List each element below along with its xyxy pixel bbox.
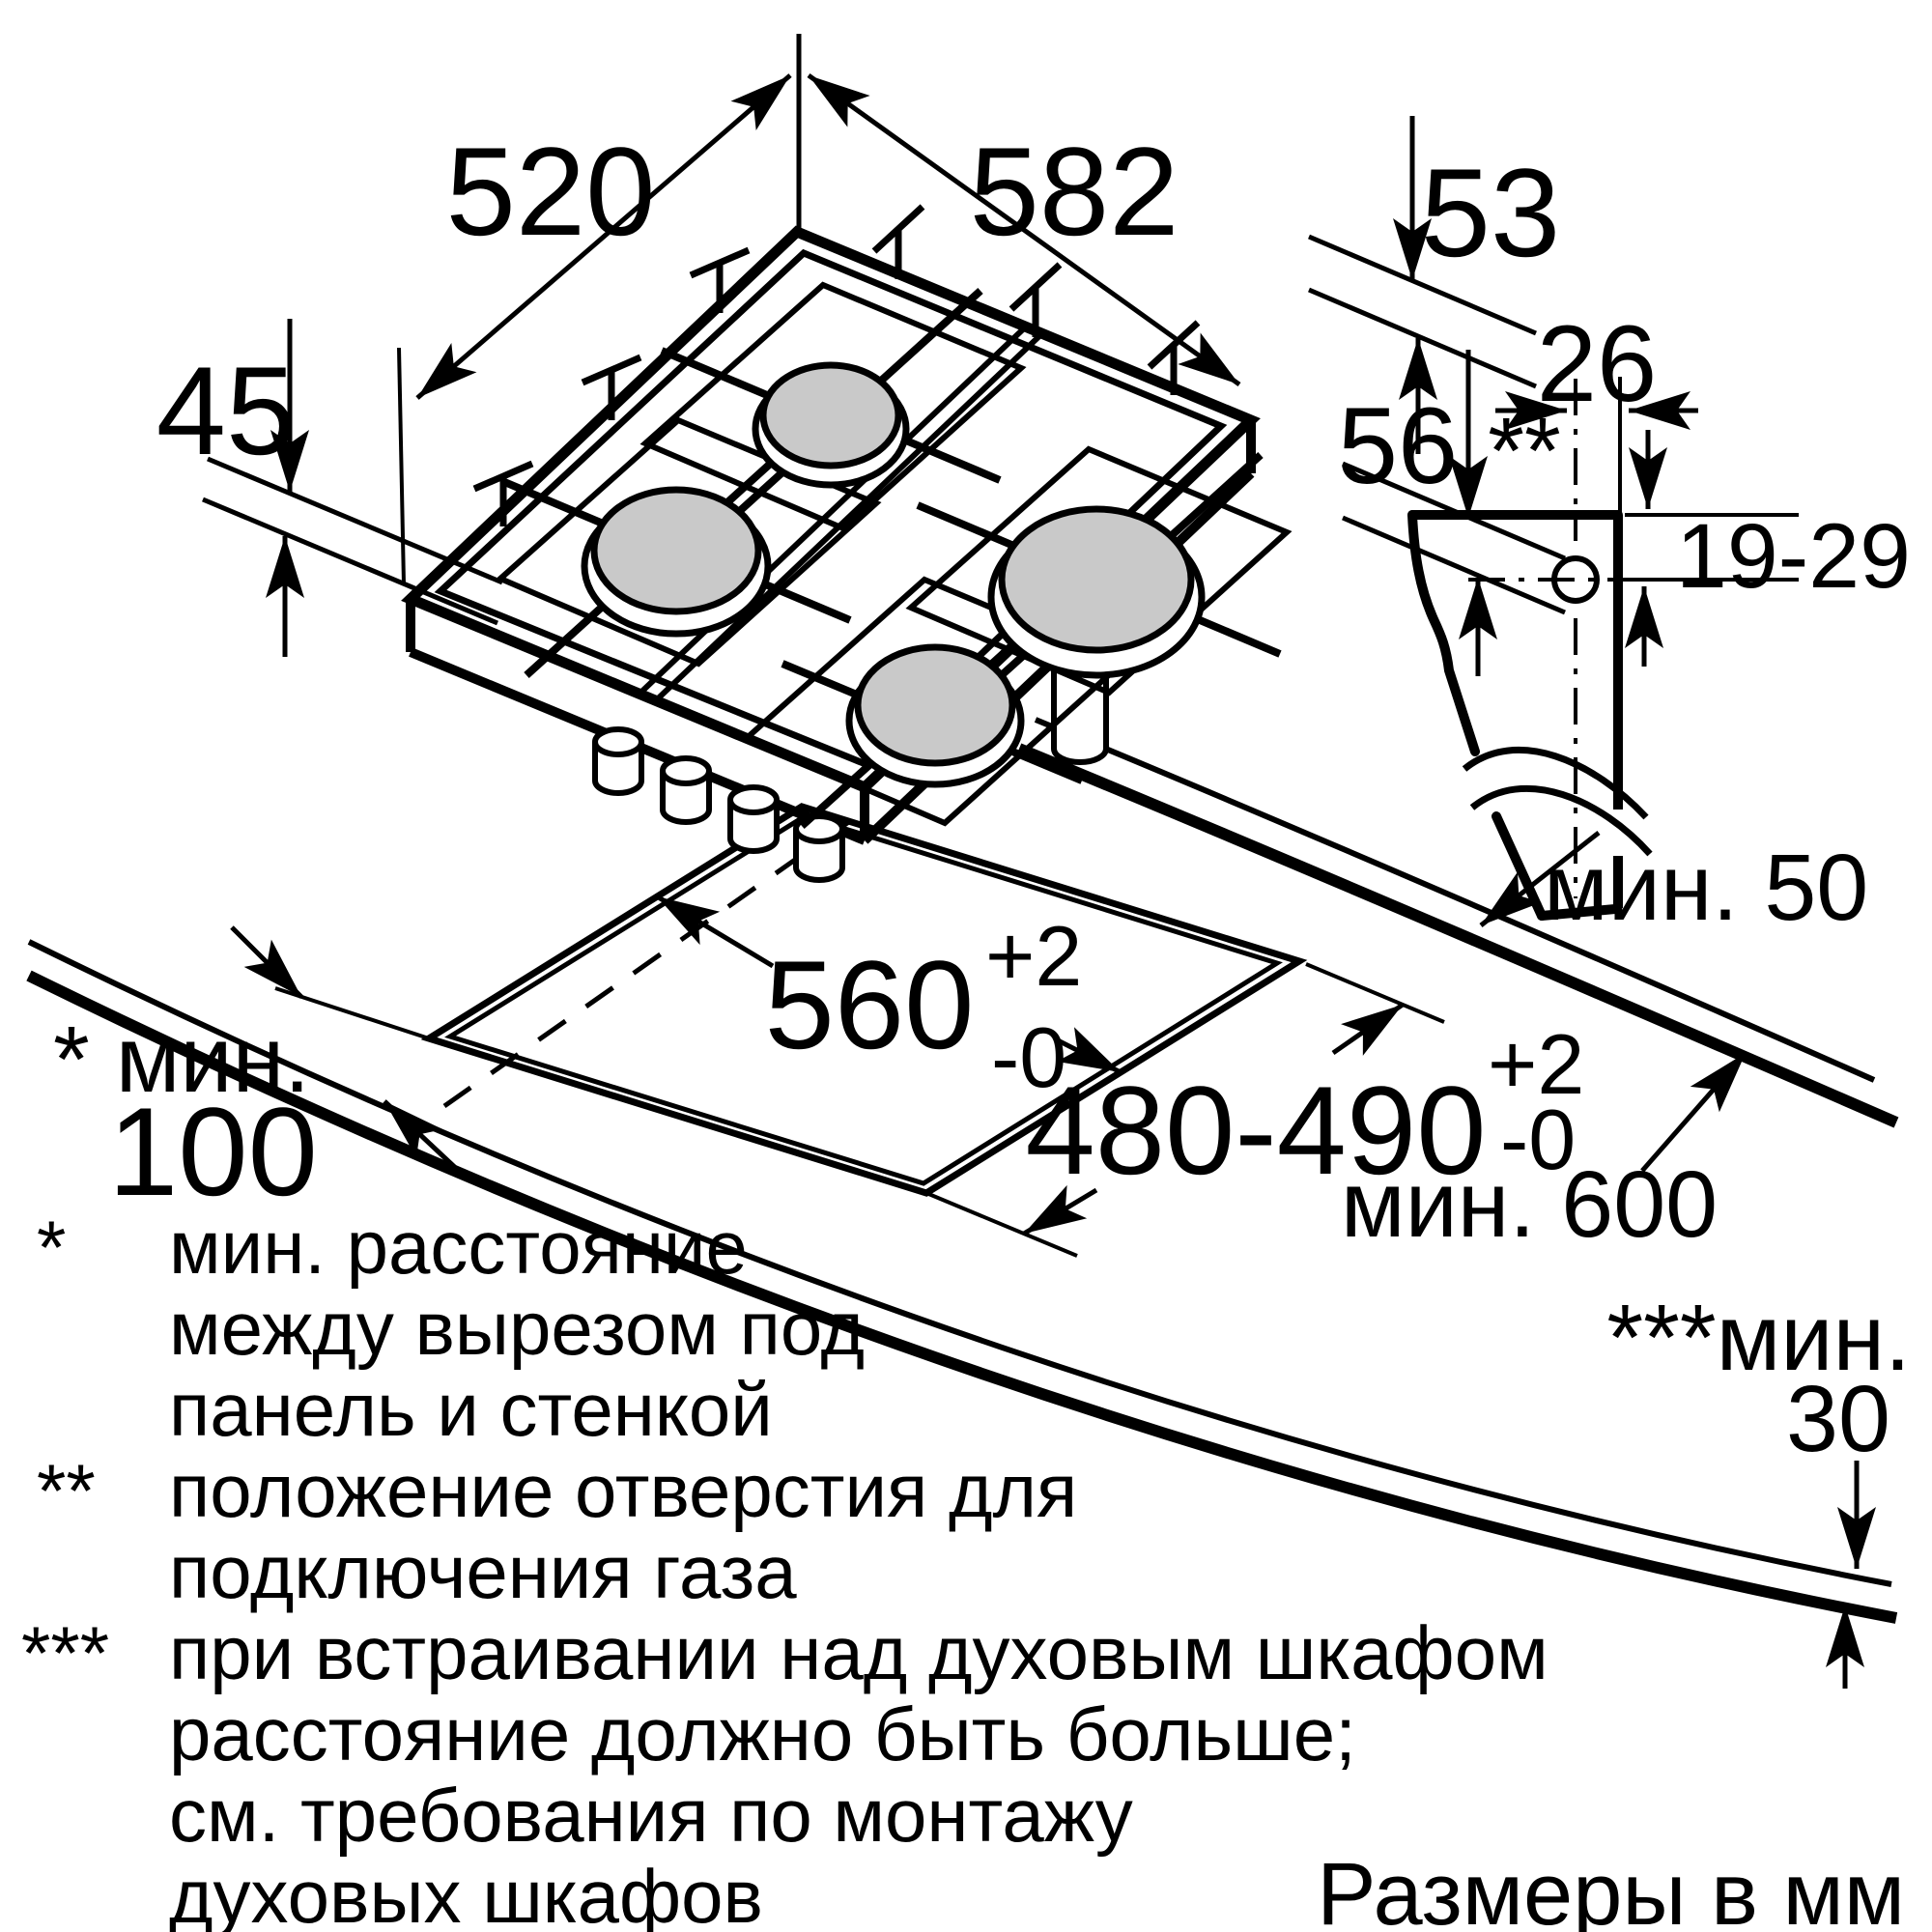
- dim-560: 560: [765, 934, 975, 1075]
- footnote-marker-3: ***: [21, 1610, 109, 1695]
- value-min100: 100: [108, 1081, 318, 1222]
- dim-520: 520: [446, 121, 656, 262]
- footnote-line: мин. расстояние: [169, 1205, 748, 1290]
- burner-front: [849, 647, 1021, 784]
- footnote-line: см. требования по монтажу: [169, 1773, 1133, 1858]
- burner-back: [755, 365, 906, 485]
- footnote-line: духовых шкафов: [169, 1854, 763, 1932]
- gas-hole-marker: **: [1488, 398, 1561, 503]
- footnote-line: панель и стенкой: [169, 1367, 773, 1452]
- dim-560-plus: +2: [985, 908, 1082, 1004]
- label-min600: мин. 600: [1341, 1151, 1718, 1257]
- footnote-line: расстояние должно быть больше;: [169, 1691, 1356, 1776]
- dim-45: 45: [156, 340, 297, 481]
- dim-19-29: 19-29: [1676, 505, 1911, 608]
- bracket-detail: 26 ** 19-29: [1412, 303, 1911, 916]
- burner-left: [584, 490, 768, 634]
- burner-right: [991, 509, 1202, 675]
- label-min50: мин. 50: [1544, 835, 1868, 940]
- dim-53: 53: [1421, 142, 1561, 283]
- footnote-marker-2: **: [37, 1448, 96, 1533]
- footnote-marker-1: *: [37, 1205, 66, 1290]
- units-note: Размеры в мм: [1317, 1845, 1905, 1932]
- value-min30: 30: [1786, 1366, 1890, 1471]
- hob-drawing: [411, 207, 1287, 880]
- dim-582: 582: [970, 121, 1179, 262]
- footnotes: * мин. расстояние между вырезом под пане…: [21, 1205, 1548, 1932]
- installation-diagram: 520 582 45 53 56: [0, 0, 1932, 1932]
- footnote-line: при встраивании над духовым шкафом: [169, 1610, 1548, 1695]
- footnote-line: положение отверстия для: [169, 1448, 1077, 1533]
- dim-56: 56: [1338, 385, 1459, 506]
- footnote-line: подключения газа: [169, 1529, 797, 1614]
- footnote-line: между вырезом под: [169, 1286, 865, 1371]
